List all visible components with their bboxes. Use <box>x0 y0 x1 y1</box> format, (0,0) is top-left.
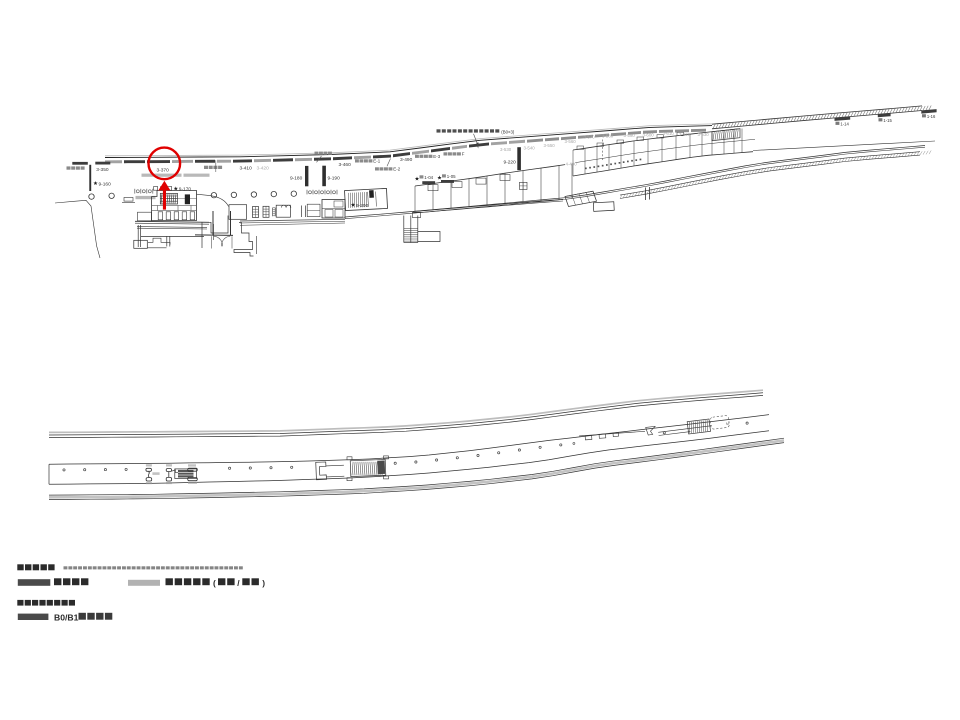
svg-text:9-220: 9-220 <box>504 159 517 165</box>
svg-text:B0/B1: B0/B1 <box>54 612 79 622</box>
svg-text:9-170: 9-170 <box>179 187 192 193</box>
svg-text:3-610: 3-610 <box>663 131 675 136</box>
svg-text:3-590: 3-590 <box>624 133 636 138</box>
svg-text:9-190: 9-190 <box>328 175 341 181</box>
svg-text:4-400: 4-400 <box>566 162 578 167</box>
svg-text:1-15: 1-15 <box>883 118 892 123</box>
svg-text:E-1: E-1 <box>373 159 380 164</box>
svg-text:E-2: E-2 <box>393 167 400 172</box>
svg-text:(: ( <box>213 578 216 588</box>
svg-text:M: M <box>726 422 729 426</box>
svg-text:F: F <box>462 152 465 157</box>
svg-text:3-580: 3-580 <box>602 134 614 139</box>
svg-text:3-350: 3-350 <box>96 167 109 173</box>
svg-text:3-620: 3-620 <box>679 132 691 137</box>
svg-text:3-540: 3-540 <box>524 145 536 150</box>
svg-text:3-560: 3-560 <box>565 139 577 144</box>
svg-text:1-05: 1-05 <box>447 174 456 179</box>
svg-text:): ) <box>262 578 265 588</box>
svg-text:(B0×3): (B0×3) <box>501 129 515 134</box>
svg-text:3-600: 3-600 <box>643 133 655 138</box>
svg-text:3-460: 3-460 <box>339 162 352 168</box>
svg-text:3-530: 3-530 <box>500 147 512 152</box>
svg-text:9-200: 9-200 <box>356 203 369 209</box>
svg-text:1-14: 1-14 <box>840 122 849 127</box>
svg-text:1-16: 1-16 <box>927 114 936 119</box>
svg-text:9-160: 9-160 <box>99 181 112 187</box>
svg-text:1-04: 1-04 <box>424 175 433 180</box>
svg-text:3-420: 3-420 <box>257 165 270 171</box>
svg-text:9-180: 9-180 <box>290 175 303 181</box>
svg-text:3-370: 3-370 <box>157 167 170 173</box>
svg-text:E-3: E-3 <box>433 154 440 159</box>
svg-text:3-410: 3-410 <box>240 165 253 171</box>
svg-text:3-570: 3-570 <box>584 134 596 139</box>
svg-text:3-490: 3-490 <box>400 157 413 163</box>
svg-text:3-630: 3-630 <box>698 132 710 137</box>
svg-text:3-550: 3-550 <box>544 143 556 148</box>
